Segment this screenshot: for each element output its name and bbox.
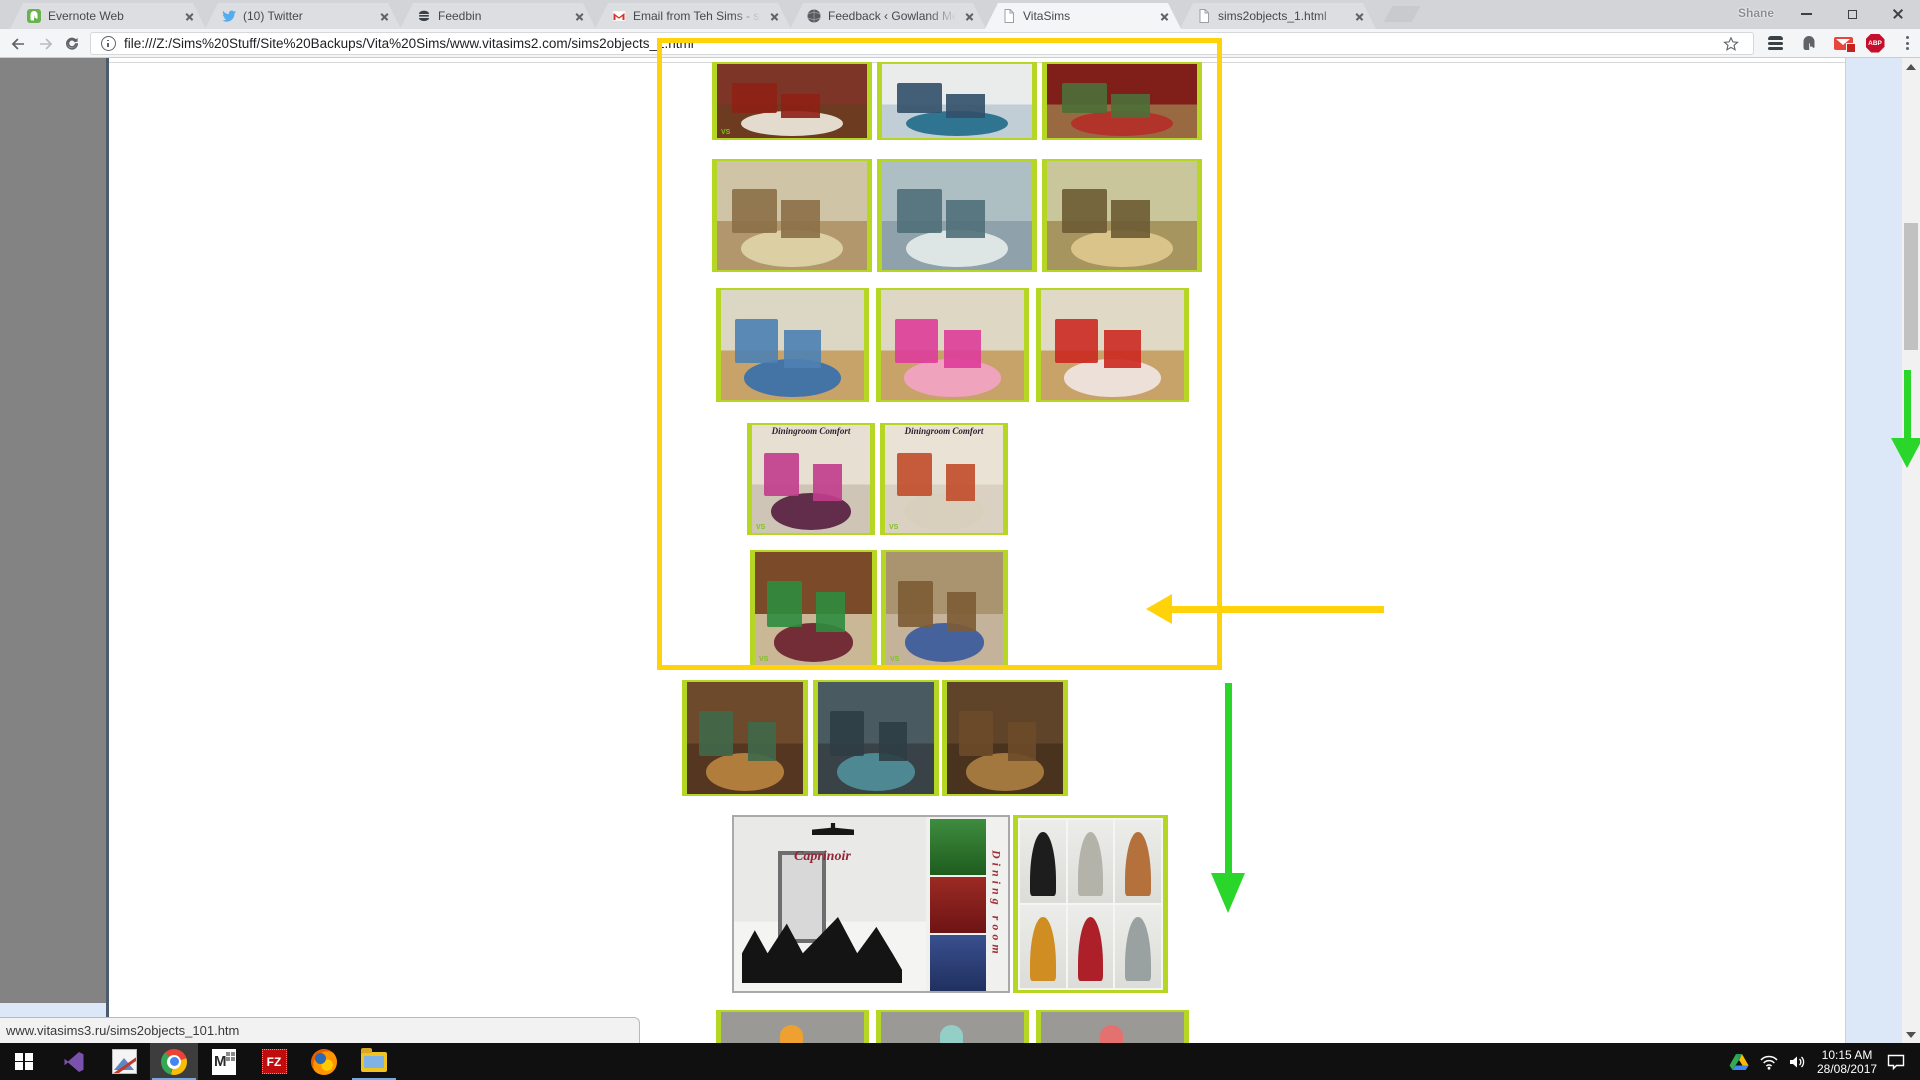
forward-icon [38, 36, 54, 52]
fireplace-cell [1020, 820, 1066, 903]
feedbin-favicon [416, 8, 432, 24]
gmail-favicon [611, 8, 627, 24]
fireplace-cell [1068, 905, 1114, 988]
filezilla-icon: FZ [262, 1049, 287, 1074]
tab-close-icon[interactable] [1157, 8, 1173, 24]
tab-evernote[interactable]: Evernote Web [10, 3, 206, 29]
tab-twitter[interactable]: (10) Twitter [205, 3, 401, 29]
diningroom-comfort-label: Diningroom Comfort [752, 426, 870, 436]
taskbar-filezilla[interactable]: FZ [250, 1043, 298, 1080]
variant-panel-green [930, 819, 986, 875]
tab-sims2objects[interactable]: sims2objects_1.html [1180, 3, 1376, 29]
minimize-icon [1801, 13, 1812, 15]
tab-title: sims2objects_1.html [1218, 9, 1346, 23]
fireplace-red [1078, 917, 1104, 982]
tab-feedbin[interactable]: Feedbin [400, 3, 596, 29]
mail-checker-extension-button[interactable] [1832, 32, 1854, 54]
globe-favicon [806, 8, 822, 24]
fireplace-silver [1078, 832, 1104, 897]
variant-panel-blue [930, 935, 986, 991]
vs-watermark: VS [759, 656, 768, 663]
tab-title: Email from Teh Sims - sha [633, 9, 761, 23]
color-variant-panels [930, 819, 986, 991]
tab-close-icon[interactable] [572, 8, 588, 24]
tab-feedback[interactable]: Feedback ‹ Gowland Mec [790, 3, 986, 29]
fireplace-steel [1125, 917, 1151, 982]
abp-icon: ABP [1866, 34, 1885, 53]
envelope-icon [1834, 37, 1853, 50]
vs-watermark: VS [890, 656, 899, 663]
page-viewport: VS Diningroom Comfort VS Diningroom Comf… [0, 57, 1920, 1043]
fireplace-black [1030, 832, 1056, 897]
thumbnail-den-burgundy[interactable]: VS [750, 550, 877, 667]
tab-close-icon[interactable] [962, 8, 978, 24]
chrome-menu-button[interactable] [1896, 32, 1918, 54]
refresh-icon [64, 36, 80, 52]
thumbnail-room-red[interactable] [1042, 62, 1202, 140]
taskbar-clock[interactable]: 10:15 AM 28/08/2017 [1817, 1048, 1877, 1076]
feedbin-extension-button[interactable] [1764, 32, 1786, 54]
restore-icon [1848, 10, 1857, 19]
tab-title: Feedback ‹ Gowland Mec [828, 9, 956, 23]
dining-room-vertical-label: Dining room [984, 817, 1008, 991]
page-column-border [106, 57, 109, 1043]
thumbnail-dining-white-blue[interactable] [877, 62, 1037, 140]
status-bar: www.vitasims3.ru/sims2objects_101.htm [0, 1017, 640, 1043]
volume-icon[interactable] [1788, 1054, 1808, 1070]
thumbnail-diningroom-comfort-red[interactable]: Diningroom Comfort VS [880, 423, 1008, 535]
thumbnail-diningroom-comfort-pink[interactable]: Diningroom Comfort VS [747, 423, 875, 535]
thumbnail-oriental-teal[interactable] [813, 680, 939, 796]
thumbnail-kids-pink[interactable] [876, 288, 1029, 402]
google-drive-icon[interactable] [1728, 1052, 1750, 1072]
windows-taskbar: M FZ 10:15 AM 28/08/2017 [0, 1043, 1920, 1080]
fireplace-copper [1125, 832, 1151, 897]
thumbnail-kids-blue[interactable] [716, 288, 869, 402]
mail-badge [1846, 43, 1856, 53]
scrollbar-down-icon[interactable] [1906, 1032, 1916, 1038]
page-favicon [1001, 8, 1017, 24]
caprinoir-title: Caprinoir [794, 849, 851, 865]
browser-toolbar: file:///Z:/Sims%20Stuff/Site%20Backups/V… [0, 29, 1920, 58]
thumbnail-lamp-teal[interactable] [876, 1010, 1029, 1043]
tab-gmail[interactable]: Email from Teh Sims - sha [595, 3, 791, 29]
start-button[interactable] [0, 1043, 48, 1080]
page-favicon [1196, 8, 1212, 24]
page-left-column [0, 57, 106, 1003]
thumbnail-kids-red[interactable] [1036, 288, 1189, 402]
desktop-screen: Evernote Web (10) Twitter Feedbin Email … [0, 0, 1920, 1080]
tab-title: (10) Twitter [243, 9, 371, 23]
evernote-extension-button[interactable] [1798, 32, 1820, 54]
scrollbar-thumb[interactable] [1904, 223, 1918, 350]
tab-close-icon[interactable] [767, 8, 783, 24]
refresh-button[interactable] [60, 32, 84, 56]
windows-logo-icon [15, 1053, 33, 1071]
vs-watermark: VS [721, 129, 730, 136]
taskbar-firefox[interactable] [300, 1043, 348, 1080]
address-bar[interactable]: file:///Z:/Sims%20Stuff/Site%20Backups/V… [90, 32, 1754, 55]
tab-title: VitaSims [1023, 9, 1151, 23]
visual-studio-icon [61, 1049, 87, 1075]
chrome-icon [161, 1049, 187, 1075]
chandelier-shape [812, 823, 854, 835]
evernote-favicon [26, 8, 42, 24]
vs-watermark: VS [756, 524, 765, 531]
status-link-text: www.vitasims3.ru/sims2objects_101.htm [0, 1023, 239, 1038]
url-text: file:///Z:/Sims%20Stuff/Site%20Backups/V… [124, 36, 694, 51]
firefox-icon [311, 1049, 337, 1075]
action-center-icon[interactable] [1886, 1053, 1906, 1071]
burger-icon [1768, 34, 1783, 52]
photo-app-icon [112, 1049, 137, 1074]
thumbnail-caprinoir-dining-set[interactable]: Caprinoir Dining room [732, 815, 1010, 993]
new-tab-button[interactable] [1384, 6, 1421, 22]
thumbnail-den-blue[interactable]: VS [881, 550, 1008, 667]
tab-title: Evernote Web [48, 9, 176, 23]
taskbar-file-explorer[interactable] [350, 1043, 398, 1080]
diningroom-comfort-label: Diningroom Comfort [885, 426, 1003, 436]
variant-panel-red [930, 877, 986, 933]
adblock-plus-extension-button[interactable]: ABP [1864, 32, 1886, 54]
back-button[interactable] [6, 32, 30, 56]
tab-close-icon[interactable] [377, 8, 393, 24]
taskbar-word-app[interactable]: M [200, 1043, 248, 1080]
thumbnail-living-bluegrey[interactable] [877, 159, 1037, 272]
scrollbar-up-icon[interactable] [1906, 64, 1916, 70]
m-document-icon: M [212, 1049, 236, 1075]
thumbnail-study-olive[interactable] [1042, 159, 1202, 272]
fireplace-gold [1030, 917, 1056, 982]
thumbnail-fireplaces-grid[interactable] [1013, 815, 1168, 993]
fireplace-cell [1115, 820, 1161, 903]
close-icon [1892, 8, 1904, 20]
thumbnail-living-beige[interactable] [712, 159, 872, 272]
thumbnail-bedroom-red[interactable]: VS [712, 62, 872, 140]
page-scrollbar[interactable] [1902, 57, 1920, 1043]
kebab-menu-icon [1906, 36, 1909, 50]
taskbar-photo-app[interactable] [100, 1043, 148, 1080]
thumbnail-oriental-brown[interactable] [682, 680, 808, 796]
twitter-favicon [221, 8, 237, 24]
bookmark-star-button[interactable] [1723, 36, 1739, 57]
window-close-button[interactable] [1878, 0, 1918, 28]
system-tray: 10:15 AM 28/08/2017 [1728, 1043, 1906, 1080]
file-explorer-icon [361, 1052, 387, 1072]
fireplace-cell [1115, 905, 1161, 988]
back-icon [10, 36, 26, 52]
taskbar-chrome-active[interactable] [150, 1043, 198, 1080]
star-icon [1723, 36, 1739, 52]
tab-title: Feedbin [438, 9, 566, 23]
thumbnail-oriental-ornate[interactable] [942, 680, 1068, 796]
wifi-icon[interactable] [1759, 1054, 1779, 1070]
profile-name-button[interactable]: Shane [1726, 6, 1786, 20]
thumbnail-lamp-orange[interactable] [716, 1010, 869, 1043]
page-info-icon[interactable] [101, 36, 116, 51]
window-restore-button[interactable] [1832, 0, 1872, 28]
vs-watermark: VS [889, 524, 898, 531]
fireplace-cell [1068, 820, 1114, 903]
fireplace-cell [1020, 905, 1066, 988]
forward-button[interactable] [34, 32, 58, 56]
tab-vitasims-active[interactable]: VitaSims [985, 3, 1181, 29]
elephant-icon [1799, 33, 1819, 53]
thumbnail-lamp-red[interactable] [1036, 1010, 1189, 1043]
browser-tab-strip: Evernote Web (10) Twitter Feedbin Email … [0, 0, 1920, 29]
taskbar-visual-studio[interactable] [50, 1043, 98, 1080]
clock-time: 10:15 AM [1817, 1048, 1877, 1062]
tab-close-icon[interactable] [1352, 8, 1368, 24]
window-minimize-button[interactable] [1786, 0, 1826, 28]
tab-close-icon[interactable] [182, 8, 198, 24]
caprinoir-scene: Caprinoir [734, 817, 926, 991]
clock-date: 28/08/2017 [1817, 1062, 1877, 1076]
